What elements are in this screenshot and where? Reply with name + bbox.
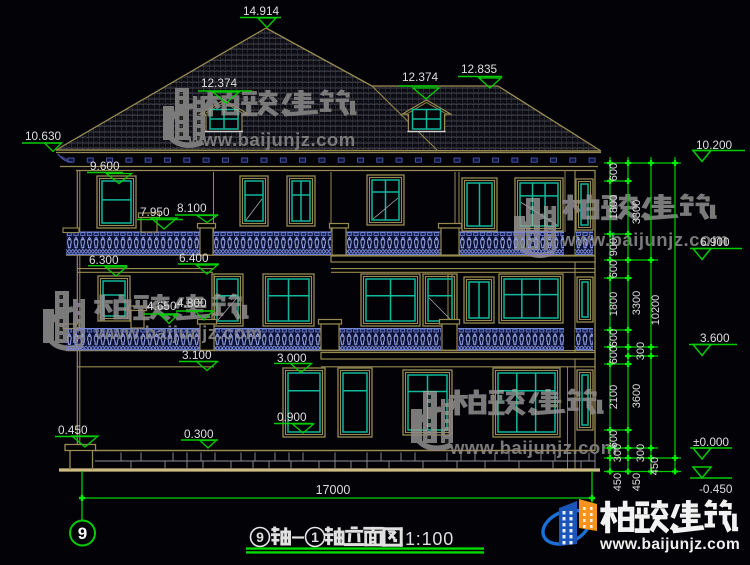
svg-text:www.baijunjz.com: www.baijunjz.com bbox=[599, 536, 740, 553]
svg-text:9.600: 9.600 bbox=[90, 159, 120, 173]
svg-text:3600: 3600 bbox=[631, 384, 643, 408]
svg-text:1800: 1800 bbox=[608, 292, 620, 316]
svg-text:600: 600 bbox=[608, 163, 620, 181]
svg-text:450: 450 bbox=[631, 473, 643, 491]
svg-text:3300: 3300 bbox=[631, 200, 643, 224]
svg-text:1:100: 1:100 bbox=[405, 529, 454, 549]
svg-text:12.374: 12.374 bbox=[201, 76, 238, 90]
svg-text:4.650: 4.650 bbox=[147, 299, 177, 313]
svg-text:450: 450 bbox=[649, 457, 661, 475]
svg-text:3.100: 3.100 bbox=[182, 348, 212, 362]
svg-text:10.630: 10.630 bbox=[25, 129, 62, 143]
svg-text:600: 600 bbox=[608, 346, 620, 364]
svg-text:12.374: 12.374 bbox=[402, 70, 439, 84]
svg-text:600: 600 bbox=[608, 260, 620, 278]
svg-text:3.600: 3.600 bbox=[700, 331, 730, 345]
svg-text:3300: 3300 bbox=[631, 291, 643, 315]
svg-text:900: 900 bbox=[608, 238, 620, 256]
svg-text:9: 9 bbox=[78, 524, 87, 543]
svg-text:14.914: 14.914 bbox=[243, 4, 280, 18]
svg-text:9: 9 bbox=[256, 529, 264, 545]
svg-text:300: 300 bbox=[635, 342, 647, 360]
svg-text:6.400: 6.400 bbox=[179, 251, 209, 265]
svg-text:450: 450 bbox=[612, 473, 624, 491]
svg-text:8.100: 8.100 bbox=[177, 201, 207, 215]
svg-text:www.baijunjz.com: www.baijunjz.com bbox=[94, 322, 263, 343]
svg-text:1: 1 bbox=[311, 529, 319, 545]
svg-text:300: 300 bbox=[635, 444, 647, 462]
svg-text:±0.000: ±0.000 bbox=[693, 435, 729, 449]
svg-text:6.900: 6.900 bbox=[700, 235, 730, 249]
svg-text:12.835: 12.835 bbox=[461, 62, 498, 76]
svg-text:17000: 17000 bbox=[316, 483, 351, 497]
svg-text:600: 600 bbox=[608, 329, 620, 347]
svg-text:10200: 10200 bbox=[650, 295, 662, 326]
svg-text:300: 300 bbox=[612, 444, 624, 462]
svg-text:-0.450: -0.450 bbox=[699, 482, 733, 496]
svg-text:0.300: 0.300 bbox=[184, 427, 214, 441]
svg-text:4.800: 4.800 bbox=[177, 296, 207, 310]
svg-text:0.450: 0.450 bbox=[58, 423, 88, 437]
svg-text:www.baijunjz.com: www.baijunjz.com bbox=[187, 129, 356, 150]
svg-text:www.baijunjz.com: www.baijunjz.com bbox=[449, 437, 618, 458]
svg-text:2100: 2100 bbox=[608, 385, 620, 409]
svg-text:7.950: 7.950 bbox=[140, 205, 170, 219]
svg-text:0.900: 0.900 bbox=[277, 410, 307, 424]
svg-text:1800: 1800 bbox=[608, 195, 620, 219]
